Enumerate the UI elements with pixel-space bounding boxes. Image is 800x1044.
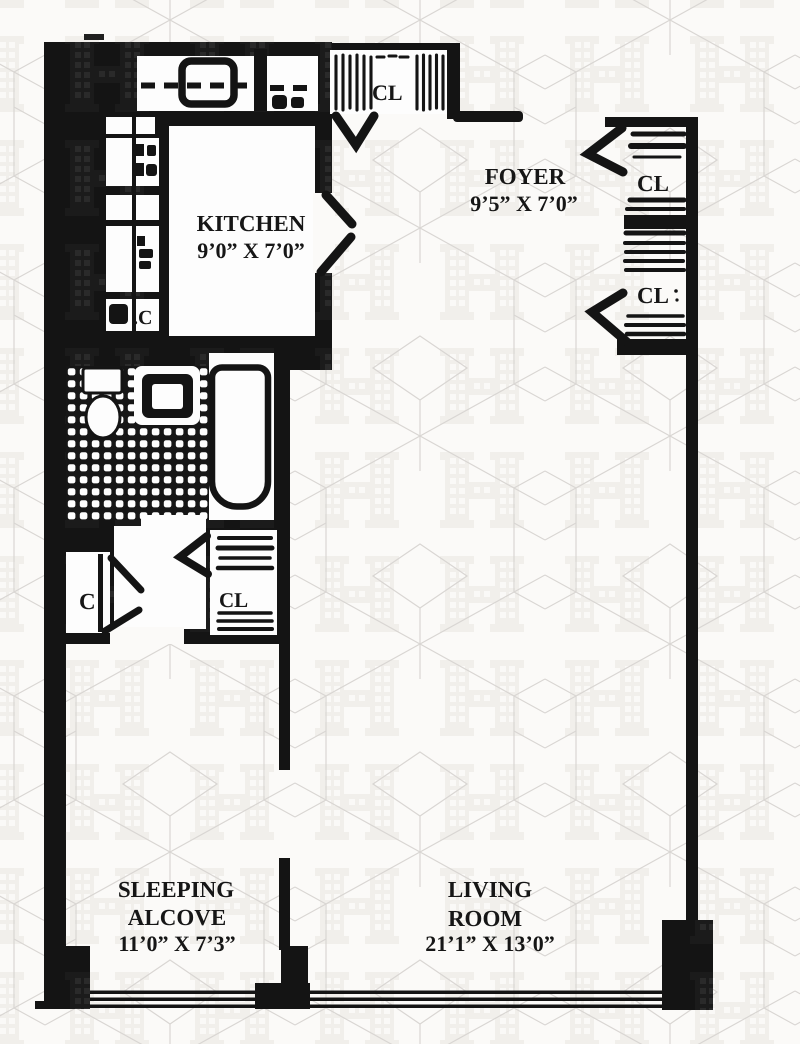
svg-text:ROOM: ROOM [448,906,522,931]
svg-text:21’1” X 13’0”: 21’1” X 13’0” [425,931,555,956]
svg-text:9’5” X 7’0”: 9’5” X 7’0” [470,191,578,216]
svg-text:ALCOVE: ALCOVE [128,905,226,930]
svg-text:LIVING: LIVING [448,877,532,902]
svg-text:SLEEPING: SLEEPING [118,877,234,902]
svg-text:9’0” X 7’0”: 9’0” X 7’0” [197,238,305,263]
svg-text:CL: CL [372,80,403,105]
svg-text:CL: CL [219,588,248,612]
svg-text:KITCHEN: KITCHEN [197,211,306,236]
svg-text:11’0” X 7’3”: 11’0” X 7’3” [118,931,235,956]
svg-text:C: C [79,589,96,614]
svg-text:CL: CL [637,171,669,196]
svg-text:CL: CL [637,283,669,308]
svg-text:.C: .C [133,307,152,329]
svg-text:FOYER: FOYER [485,164,566,189]
